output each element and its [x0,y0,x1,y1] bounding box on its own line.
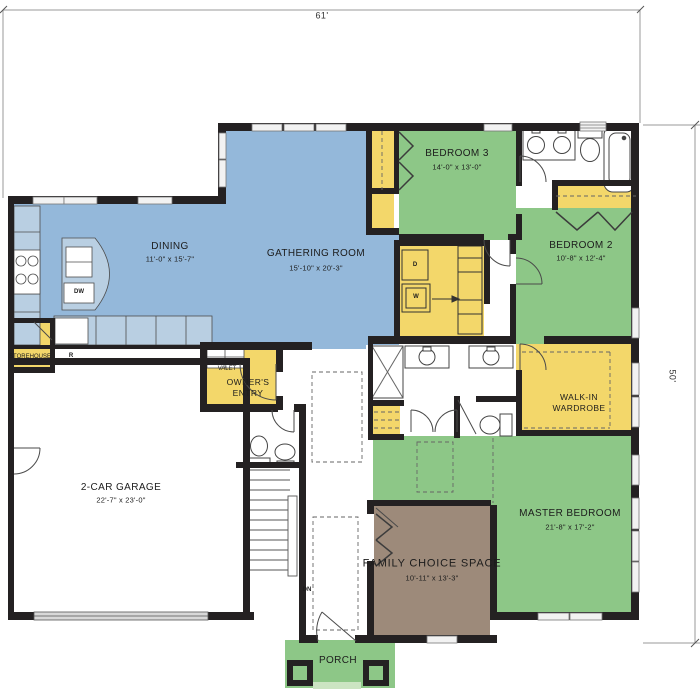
walk-in-wardrobe-label-line1: WALK-IN [560,393,598,402]
owners-entry-label-line1: OWNER'S [227,378,270,387]
dining-label: DINING [151,242,188,252]
walk-in-wardrobe-label-line2: WARDROBE [553,404,606,413]
valet-label: VALET [218,366,237,372]
refrigerator [55,318,88,344]
wc-toilet [480,416,500,434]
closet-cell-area [370,194,394,228]
bedroom3-size: 14'-0" x 13'-0" [432,163,481,171]
owners-entry-label-line2: ENTRY [233,389,264,398]
wc-toilet-tank [500,414,512,436]
garage-label: 2-CAR GARAGE [81,483,161,493]
refrigerator-label: R [69,353,73,359]
staircase [250,470,297,576]
stairs-down-label: DN [303,587,312,593]
master-bedroom-size: 21'-8" x 17'-2" [545,523,594,531]
dishwasher-label: DW [74,289,84,295]
bedroom2-size: 10'-8" x 12'-4" [556,254,605,262]
toilet [581,139,600,162]
floor-plan-drawing [0,0,700,700]
bedroom3-area [399,128,516,240]
bedroom2-area [516,208,638,344]
porch-label: PORCH [319,656,357,666]
walk-in-wardrobe-area [516,344,638,436]
family-choice-space-label: FAMILY CHOICE SPACE [363,559,502,570]
dining-size: 11'-0" x 15'-7" [146,255,195,263]
bedroom2-label: BEDROOM 2 [549,241,613,251]
dimension-width-label: 61' [316,12,329,21]
gathering-room-label: GATHERING ROOM [267,249,365,259]
family-choice-space-area [374,505,490,638]
linen-closet-area [372,404,400,438]
laundry-area [399,240,484,340]
room-fills [12,128,638,689]
powder-sink [275,444,295,460]
powder-toilet [251,436,268,456]
dimension-height-label: 50' [668,370,677,383]
storehouse-label: STOREHOUSE [9,354,51,360]
washer-label: W [413,294,419,300]
dryer-label: D [413,262,417,268]
family-choice-space-size: 10'-11" x 13'-3" [406,574,459,582]
master-bedroom-label: MASTER BEDROOM [519,509,621,519]
gathering-room-size: 15'-10" x 20'-3" [289,264,343,272]
gathering-room-area [222,128,366,349]
porch-step [313,682,361,689]
garage-size: 22'-7" x 23'-0" [96,496,145,504]
stair-rail [288,496,297,576]
bedroom3-label: BEDROOM 3 [425,149,489,159]
floor-plan: 61' 50' DINING 11'-0" x 15'-7" GATHERING… [0,0,700,700]
